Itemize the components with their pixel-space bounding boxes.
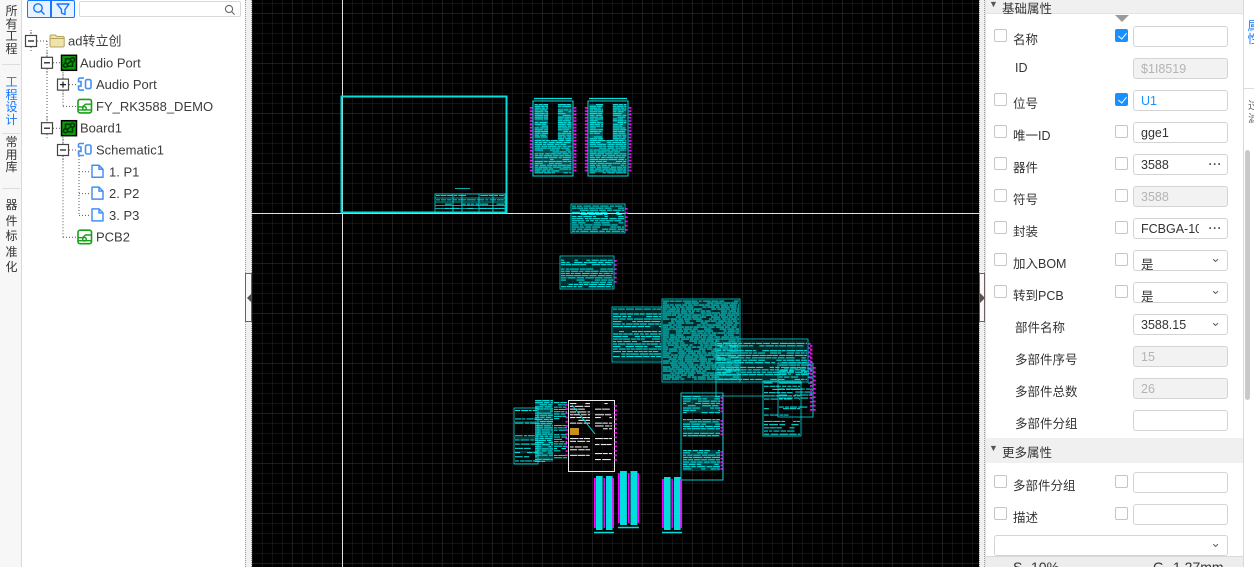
svg-text:Board1: Board1	[80, 121, 122, 136]
svg-text:Schematic1: Schematic1	[96, 143, 164, 158]
svg-text:2. P2: 2. P2	[109, 186, 139, 201]
svg-text:3. P3: 3. P3	[109, 208, 139, 223]
svg-text:1. P1: 1. P1	[109, 164, 139, 179]
svg-text:ad转立创: ad转立创	[68, 34, 121, 49]
svg-text:Audio Port: Audio Port	[80, 55, 141, 70]
svg-text:PCB2: PCB2	[96, 230, 130, 245]
svg-text:Audio Port: Audio Port	[96, 77, 157, 92]
svg-text:FY_RK3588_DEMO: FY_RK3588_DEMO	[96, 99, 213, 114]
